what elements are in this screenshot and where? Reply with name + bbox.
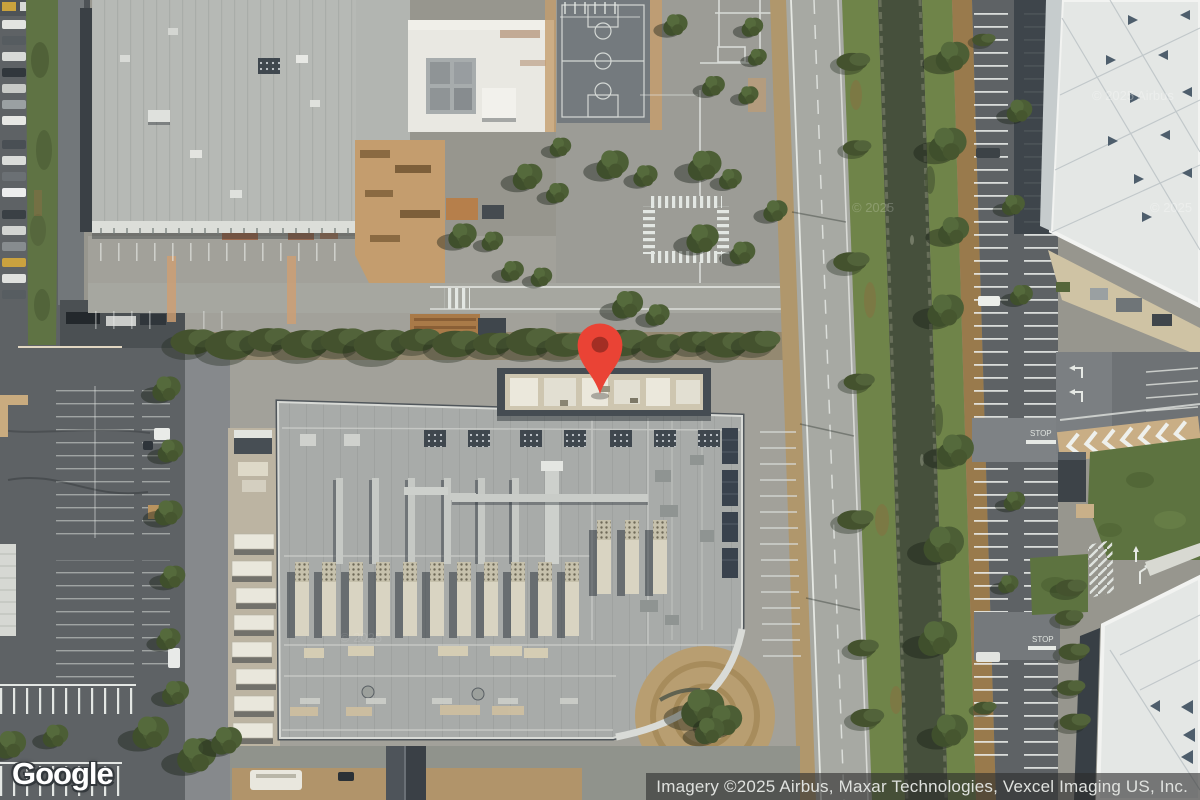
parked-van [154,428,170,440]
shed [1076,504,1094,518]
fire-lane-stripe [167,256,176,322]
satellite-imagery: STOP STOP [0,0,1200,800]
svg-text:© 2025: © 2025 [852,200,894,215]
svg-text:© 2025 Airbus: © 2025 Airbus [1092,88,1174,103]
parked-car [143,441,153,450]
pin-inner-dot [592,337,609,353]
svg-text:© 2025: © 2025 [1150,200,1192,215]
stop-marking: STOP [1030,429,1052,438]
parked-car [976,148,1000,158]
parked-car [976,652,1000,662]
roof-edge-panels [722,428,738,578]
hatched-no-park-zone [1088,540,1114,598]
svg-text:© 2025: © 2025 [340,630,382,645]
google-logo[interactable]: Google [12,756,113,792]
stop-bar [1026,440,1056,444]
map-viewport[interactable]: STOP STOP [0,0,1200,800]
pallet-stack [446,198,478,220]
fire-lane-stripe [287,256,296,324]
parked-rv [250,770,302,790]
parked-car [978,296,1000,306]
location-pin[interactable] [572,320,628,394]
dirt-strip [650,0,662,130]
basketball-court [557,0,650,123]
attribution-bar: Imagery ©2025 Airbus, Maxar Technologies… [646,773,1200,800]
parked-car [168,648,180,668]
stop-marking: STOP [1032,635,1054,644]
storefront-colonnade [92,221,355,233]
crosswalk [444,288,470,309]
parked-car [338,772,354,781]
white-annex-building [408,20,554,132]
stop-bar [1028,646,1056,650]
warehouse-west-shadow [80,8,94,232]
roof-vent-unit [258,58,280,74]
stall-row [0,688,136,714]
